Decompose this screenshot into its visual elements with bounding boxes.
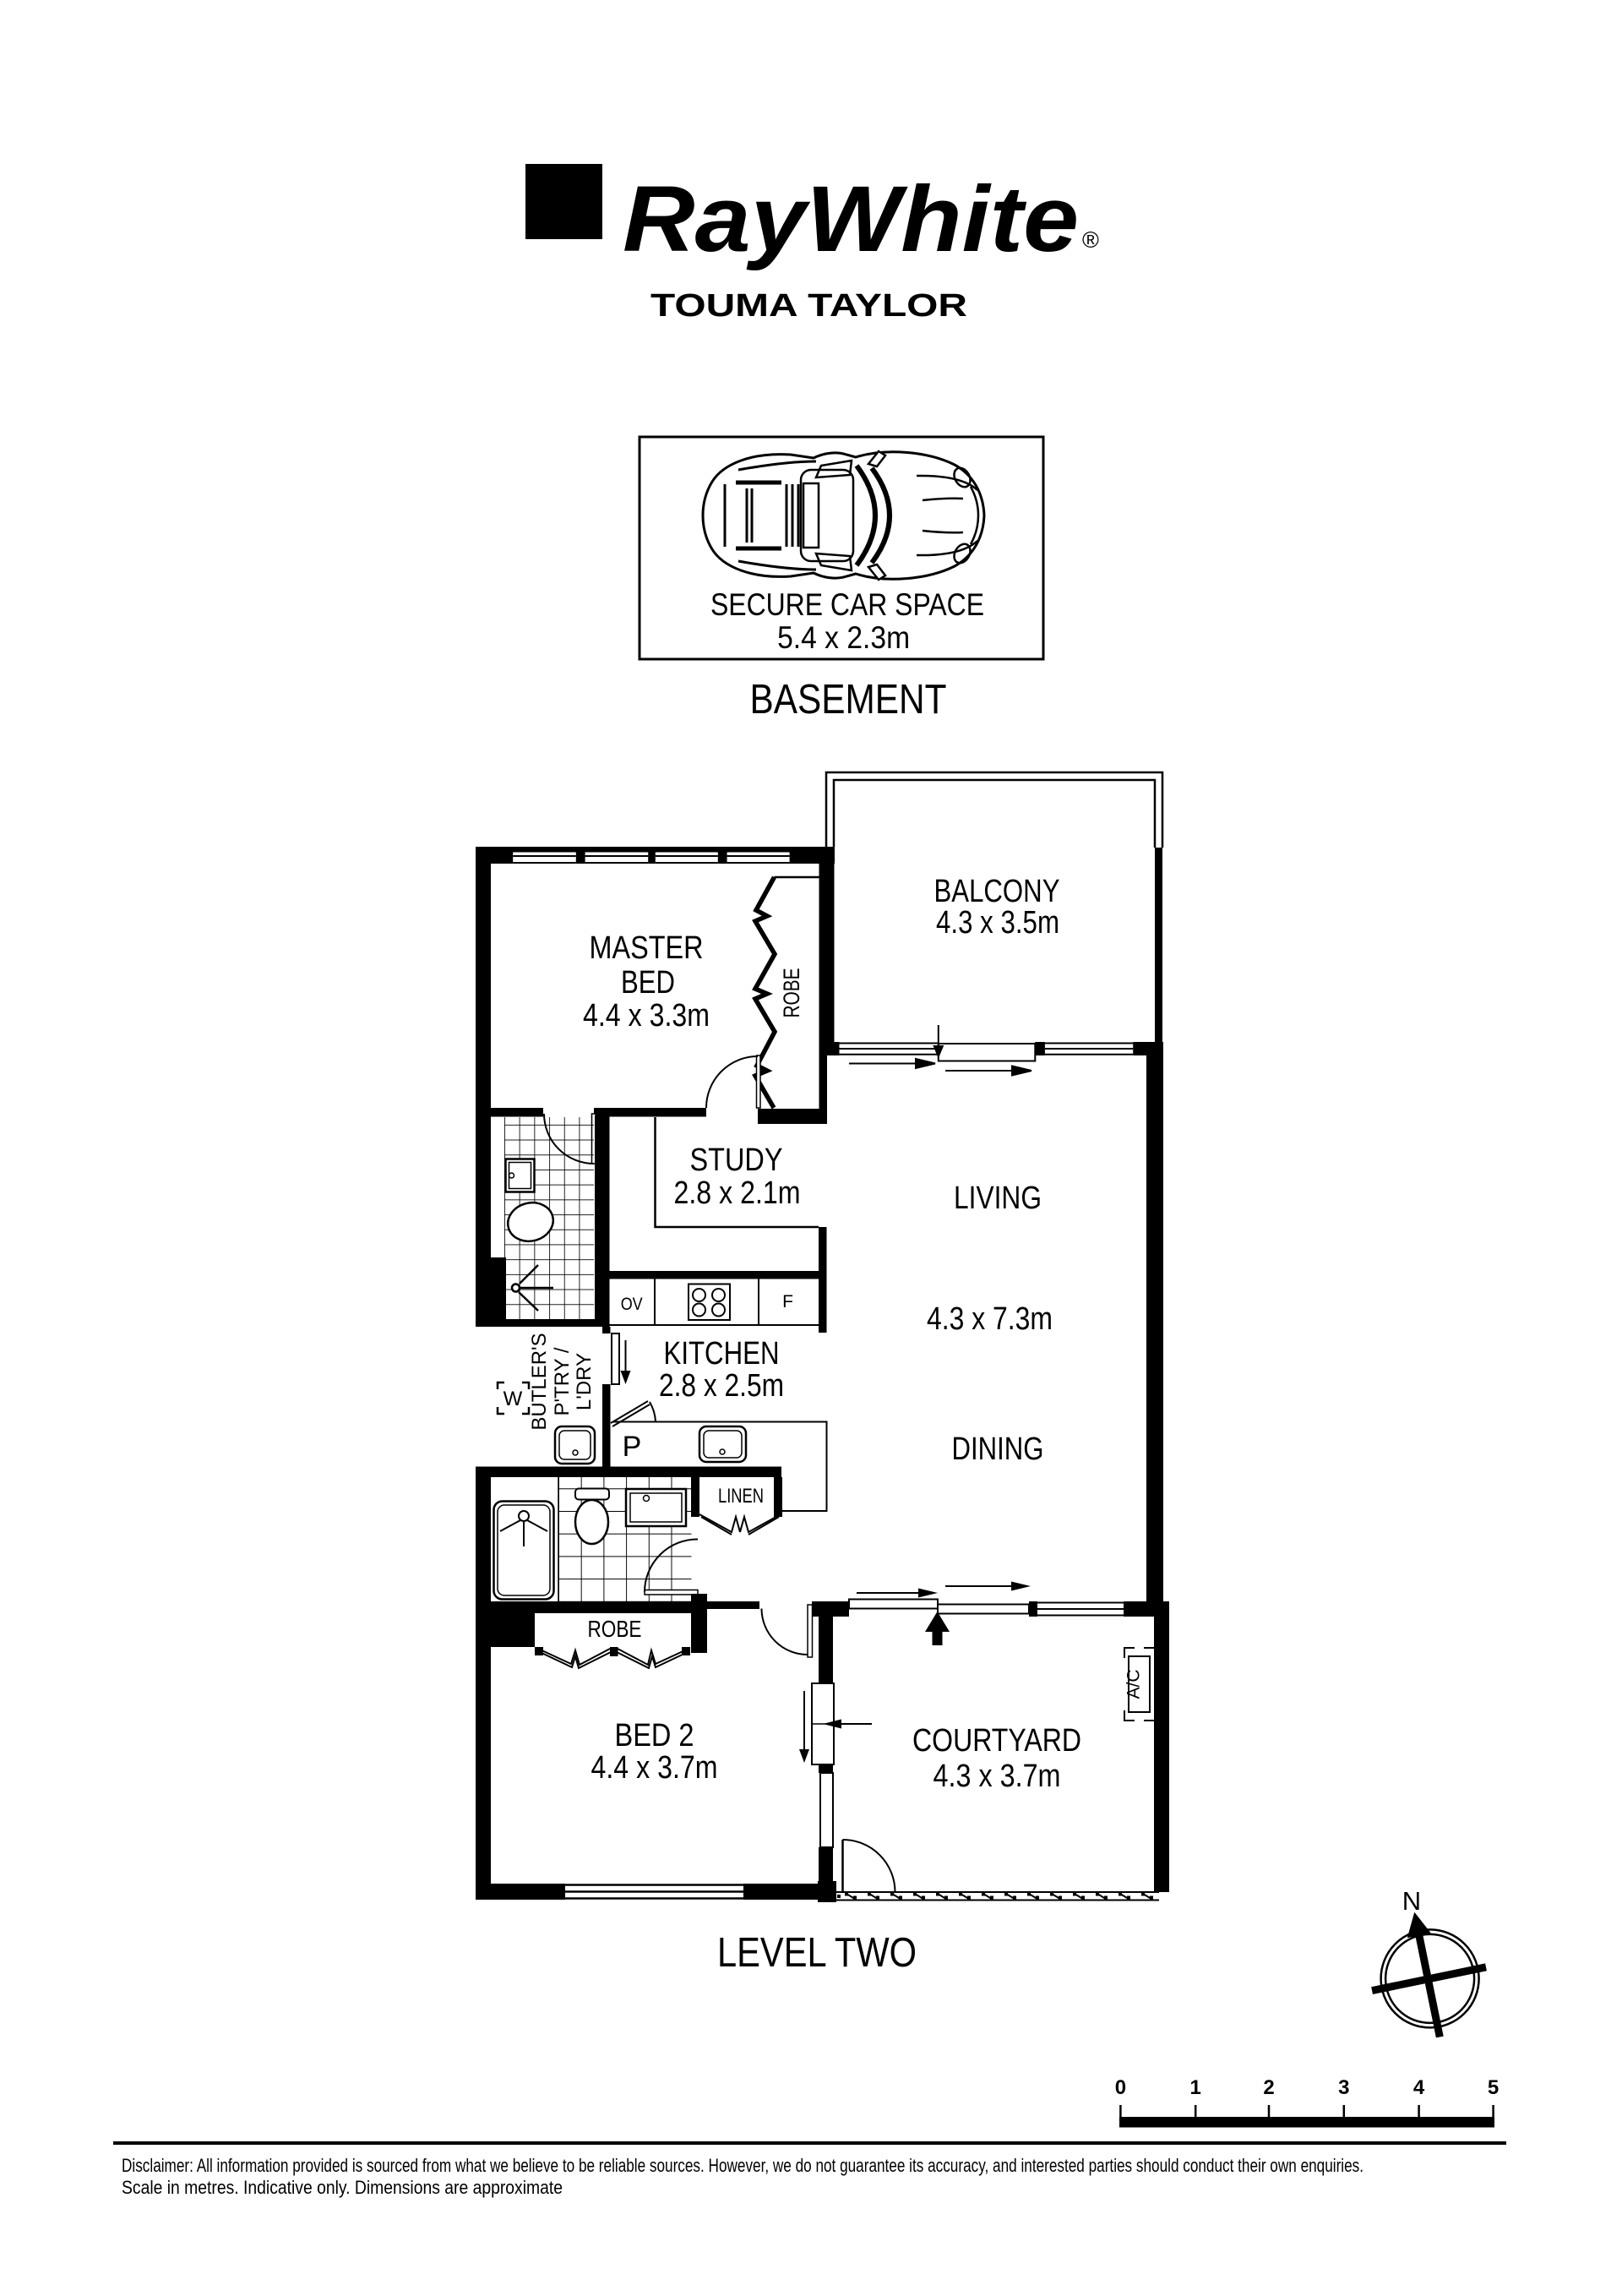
svg-text:LIVING: LIVING — [954, 1181, 1042, 1216]
svg-text:N: N — [1402, 1886, 1421, 1916]
svg-text:BALCONY: BALCONY — [934, 874, 1060, 909]
svg-text:4.4 x 3.7m: 4.4 x 3.7m — [591, 1750, 718, 1786]
svg-text:ROBE: ROBE — [588, 1616, 642, 1642]
svg-text:Scale in metres. Indicative on: Scale in metres. Indicative only. Dimens… — [122, 2177, 563, 2198]
svg-text:LINEN: LINEN — [718, 1485, 764, 1508]
svg-text:4: 4 — [1413, 2076, 1425, 2099]
svg-text:2.8 x 2.5m: 2.8 x 2.5m — [659, 1368, 784, 1404]
svg-text:KITCHEN: KITCHEN — [664, 1336, 780, 1372]
svg-text:COURTYARD: COURTYARD — [912, 1723, 1081, 1759]
svg-text:®: ® — [1082, 227, 1099, 253]
svg-text:2: 2 — [1263, 2076, 1274, 2099]
svg-text:LEVEL TWO: LEVEL TWO — [717, 1930, 917, 1976]
svg-text:DINING: DINING — [952, 1432, 1044, 1467]
svg-text:F: F — [782, 1292, 793, 1312]
svg-text:4.3 x 3.7m: 4.3 x 3.7m — [933, 1759, 1061, 1794]
svg-text:W: W — [503, 1388, 523, 1410]
svg-text:5.4 x 2.3m: 5.4 x 2.3m — [777, 620, 910, 655]
svg-text:BED 2: BED 2 — [615, 1718, 694, 1753]
svg-text:BUTLER'S: BUTLER'S — [528, 1333, 551, 1430]
svg-text:ROBE: ROBE — [779, 968, 804, 1018]
svg-text:RayWhite: RayWhite — [623, 167, 1079, 271]
svg-text:BED: BED — [621, 965, 675, 1001]
svg-text:4.3 x 7.3m: 4.3 x 7.3m — [927, 1301, 1053, 1337]
svg-text:A/C: A/C — [1124, 1669, 1144, 1699]
svg-text:4.3 x 3.5m: 4.3 x 3.5m — [936, 905, 1059, 941]
svg-text:0: 0 — [1115, 2076, 1126, 2099]
svg-text:P'TRY /: P'TRY / — [551, 1347, 574, 1415]
svg-text:3: 3 — [1338, 2076, 1349, 2099]
svg-text:4.4 x 3.3m: 4.4 x 3.3m — [583, 998, 710, 1033]
svg-text:MASTER: MASTER — [590, 930, 704, 966]
svg-text:BASEMENT: BASEMENT — [750, 677, 947, 723]
svg-text:OV: OV — [621, 1295, 643, 1314]
svg-text:L'DRY: L'DRY — [573, 1353, 596, 1410]
svg-text:TOUMA TAYLOR: TOUMA TAYLOR — [650, 288, 967, 324]
svg-text:Disclaimer: All information pr: Disclaimer: All information provided is … — [122, 2155, 1363, 2176]
svg-text:5: 5 — [1488, 2076, 1499, 2099]
svg-text:STUDY: STUDY — [690, 1143, 783, 1178]
svg-text:1: 1 — [1190, 2076, 1201, 2099]
svg-text:SECURE CAR SPACE: SECURE CAR SPACE — [710, 587, 984, 622]
svg-text:P: P — [623, 1431, 642, 1463]
svg-text:2.8 x 2.1m: 2.8 x 2.1m — [674, 1175, 801, 1211]
